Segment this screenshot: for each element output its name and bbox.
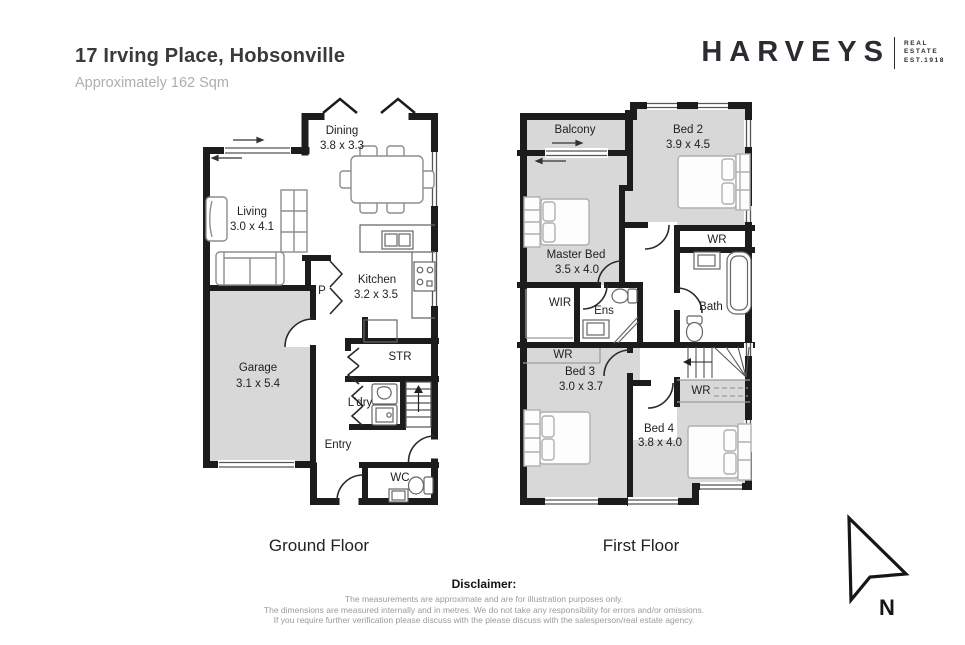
room-dims-garage: 3.1 x 5.4 [236, 378, 280, 390]
north-compass [849, 518, 906, 600]
room-label-balcony: Balcony [555, 124, 596, 136]
room-label-dining: Dining [326, 125, 359, 137]
room-dims-bed4: 3.8 x 4.0 [638, 437, 682, 449]
garage-room-fill [206, 288, 312, 466]
ground-floor-title: Ground Floor [269, 536, 369, 556]
room-label-bed2: Bed 2 [673, 124, 703, 136]
room-label-wr-bed3: WR [553, 349, 572, 361]
room-label-living: Living [237, 206, 267, 218]
room-dims-master-bed: 3.5 x 4.0 [555, 264, 599, 276]
room-label-master-bed: Master Bed [547, 249, 606, 261]
disclaimer-line: The dimensions are measured internally a… [164, 605, 804, 616]
first-floor-title: First Floor [603, 536, 680, 556]
room-dims-bed3: 3.0 x 3.7 [559, 381, 603, 393]
floor-plan-graphic [0, 0, 965, 645]
room-dims-kitchen: 3.2 x 3.5 [354, 289, 398, 301]
room-dims-dining: 3.8 x 3.3 [320, 140, 364, 152]
room-label-wr-bed2: WR [707, 234, 726, 246]
room-label-ensuite: Ens [594, 305, 614, 317]
compass-north-label: N [879, 595, 895, 621]
north-arrow-icon [849, 518, 906, 600]
room-label-storage: STR [389, 351, 412, 363]
room-label-wr-bed4: WR [691, 385, 710, 397]
disclaimer-line: The measurements are approximate and are… [164, 594, 804, 605]
room-label-bed3: Bed 3 [565, 366, 595, 378]
room-label-wir: WIR [549, 297, 571, 309]
ground-floor-plan [206, 99, 439, 502]
room-label-wc: WC [390, 472, 409, 484]
room-dims-living: 3.0 x 4.1 [230, 221, 274, 233]
laundry-appliances [372, 384, 397, 425]
dining-open-chevrons [323, 99, 415, 113]
disclaimer-heading: Disclaimer: [164, 577, 804, 591]
room-label-laundry: L'dry [348, 397, 373, 409]
room-label-bed4: Bed 4 [644, 423, 674, 435]
disclaimer-line: If you require further verification plea… [164, 615, 804, 626]
room-label-kitchen: Kitchen [358, 274, 396, 286]
disclaimer-block: Disclaimer: The measurements are approxi… [164, 577, 804, 626]
room-label-garage: Garage [239, 362, 277, 374]
room-label-bath: Bath [699, 301, 723, 313]
room-label-pantry: P [318, 285, 326, 297]
dining-table [340, 146, 434, 213]
room-dims-bed2: 3.9 x 4.5 [666, 139, 710, 151]
ground-stairs [406, 382, 431, 427]
room-label-entry: Entry [325, 439, 352, 451]
living-furniture [206, 190, 307, 285]
floorplan-page: { "header": { "title": "17 Irving Place,… [0, 0, 965, 645]
